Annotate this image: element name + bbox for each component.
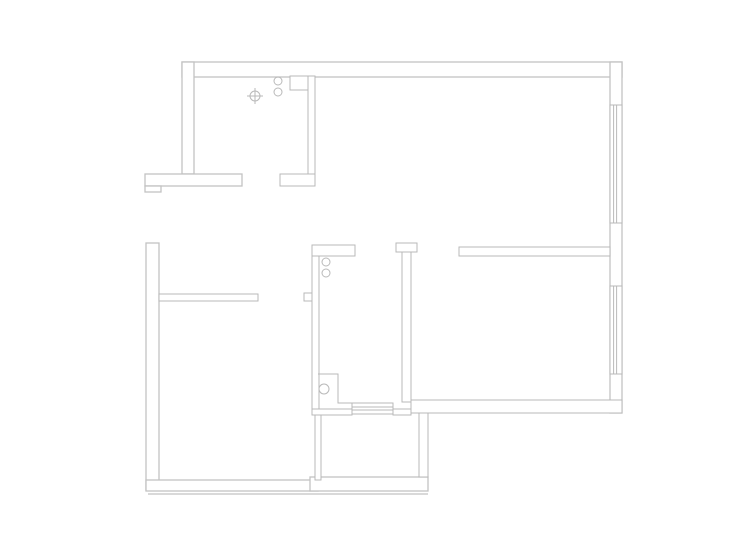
bathroom-top-wall bbox=[312, 245, 355, 256]
bathroom-step-outline bbox=[318, 374, 352, 403]
floorplan-page bbox=[0, 0, 740, 555]
bathroom-bottom-wall-right bbox=[393, 409, 411, 415]
bathroom-left-notch bbox=[304, 293, 312, 301]
bathroom-pipe-upper bbox=[322, 258, 330, 266]
bedroom1-top-wall bbox=[159, 294, 258, 301]
kitchen-foot-wall bbox=[280, 174, 315, 186]
exterior-top-wall bbox=[182, 62, 622, 77]
exterior-lower-left-wall bbox=[146, 243, 159, 490]
entrance-step bbox=[145, 186, 161, 192]
balcony-right-wall bbox=[419, 413, 428, 477]
window-bedroom2 bbox=[610, 286, 622, 374]
hall-pillar-stem bbox=[402, 252, 411, 402]
bedroom2-top-wall bbox=[459, 247, 610, 256]
hall-pillar-cap bbox=[396, 243, 417, 252]
bedroom2-bottom-wall bbox=[411, 400, 622, 413]
kitchen-pipe-lower bbox=[274, 88, 282, 96]
window-living-room bbox=[610, 105, 622, 223]
bathroom-pipe-lower bbox=[322, 269, 330, 277]
balcony-left-wall bbox=[315, 415, 321, 480]
kitchen-pipe-upper bbox=[274, 77, 282, 85]
floorplan-svg bbox=[0, 0, 740, 555]
entrance-top-wall bbox=[145, 174, 242, 186]
balcony-door-threshold bbox=[352, 403, 393, 414]
exterior-kitchen-left-wall bbox=[182, 62, 194, 174]
bathroom-left-wall bbox=[312, 245, 319, 415]
exterior-bottom-wall-left bbox=[146, 480, 318, 491]
kitchen-right-wall bbox=[308, 76, 315, 186]
exterior-bottom-wall-balcony bbox=[310, 477, 428, 491]
bathroom-floor-drain bbox=[319, 384, 329, 394]
bathroom-bottom-wall-left bbox=[312, 409, 352, 415]
kitchen-duct bbox=[290, 76, 308, 90]
